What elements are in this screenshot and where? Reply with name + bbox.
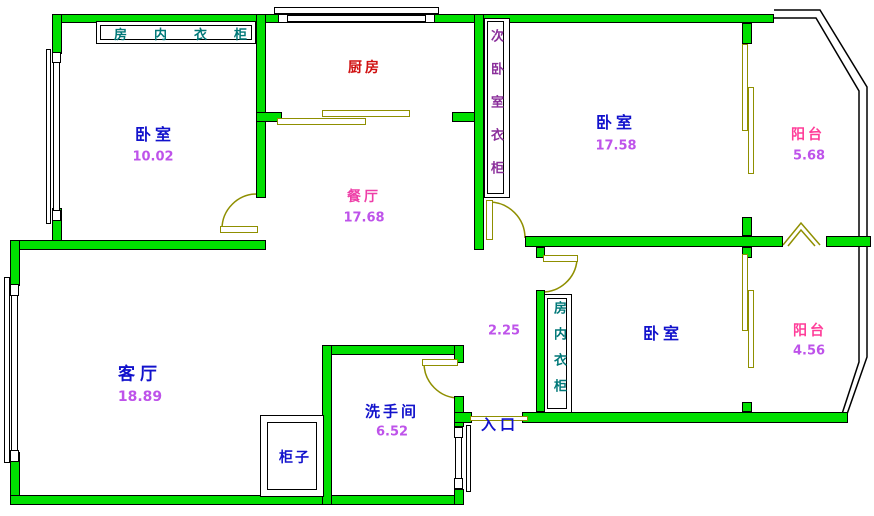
- kitchen-sliding-door-lower-panel: [277, 118, 366, 125]
- wall-bedroom-br-bottom: [522, 412, 848, 423]
- wardrobe-bottom-label: 房内衣柜: [549, 301, 568, 405]
- bedroom-bottom-right-door-arc: [541, 260, 577, 292]
- balcony-bottom-sliding-panel-b: [748, 290, 754, 368]
- bedroom-tl-window-post-top: [52, 52, 61, 63]
- bedroom-tr-name: 卧室: [596, 109, 636, 133]
- balcony-bottom-name: 阳台: [793, 320, 827, 340]
- dining-area: 17.68: [343, 211, 384, 226]
- living-window-outer: [4, 277, 10, 463]
- wall-bedroom-tr-bottom-right: [826, 236, 871, 247]
- kitchen-sliding-door-upper-panel: [322, 110, 410, 117]
- living-window-band: [11, 295, 18, 451]
- casement-window-chevron-inner: [788, 230, 815, 246]
- bathroom-window-post-bottom: [454, 478, 463, 489]
- balcony-top-sliding-panel-b: [748, 87, 754, 174]
- living-area: 18.89: [118, 389, 162, 405]
- bedroom-tr-area: 17.58: [595, 139, 636, 154]
- kitchen-window-post-left: [278, 14, 288, 23]
- dining-name: 餐厅: [347, 186, 381, 206]
- bathroom-door-arc: [424, 363, 459, 398]
- wall-kitchen-right: [474, 14, 484, 250]
- cabinet-name: 柜子: [279, 447, 311, 467]
- kitchen-name: 厨房: [348, 57, 382, 77]
- wardrobe-top-label: 房内衣柜: [114, 24, 274, 43]
- kitchen-window-outer: [274, 7, 439, 14]
- bathroom-window-post-top: [454, 427, 463, 438]
- balcony-bottom-area: 4.56: [793, 344, 825, 359]
- balcony-top-name: 阳台: [791, 124, 825, 144]
- wall-bedroom-tr-bottom-left: [525, 236, 783, 247]
- hallway-area: 2.25: [488, 324, 520, 339]
- bedroom-tr-door-leaf: [486, 200, 493, 240]
- wall-living-left-upper: [10, 240, 20, 286]
- bathroom-door-leaf: [422, 359, 458, 366]
- bedroom-tl-window-post-bottom: [52, 210, 61, 221]
- wall-bathroom-top: [322, 345, 464, 355]
- living-window-post-top: [10, 284, 19, 296]
- bedroom-br-name: 卧室: [643, 320, 683, 344]
- bathroom-name: 洗手间: [365, 401, 419, 422]
- wall-bottom: [10, 495, 463, 505]
- bedroom-tl-window-band: [53, 62, 60, 211]
- living-name: 客厅: [118, 360, 162, 385]
- bedroom-tl-door-leaf: [220, 226, 258, 233]
- casement-window-chevron-outer: [783, 223, 820, 245]
- wall-balcony-top-divider-lower-stub: [742, 217, 752, 236]
- bedroom-tl-area: 10.02: [132, 150, 173, 165]
- kitchen-window-post-right: [425, 14, 435, 23]
- bathroom-area: 6.52: [376, 425, 408, 440]
- wall-balcony-bottom-divider-lower-stub: [742, 402, 752, 412]
- balcony-top-area: 5.68: [793, 149, 825, 164]
- wall-balcony-top-divider-upper-stub: [742, 23, 752, 44]
- entrance-name: 入口: [481, 414, 519, 435]
- bedroom-br-door-leaf: [543, 255, 578, 262]
- bedroom-tl-name: 卧室: [135, 121, 175, 145]
- floor-plan: 房内衣柜 次卧室衣柜 房内衣柜 卧室 10.02 厨房 餐厅 17.68 卧室 …: [0, 0, 874, 516]
- living-window-post-bottom: [10, 450, 19, 462]
- bedroom-tl-window-outer: [46, 49, 51, 224]
- bedroom-top-left-door-arc: [222, 194, 257, 229]
- wardrobe-secondary-label: 次卧室衣柜: [486, 29, 505, 194]
- wall-bedroom-tl-left-upper: [52, 14, 62, 54]
- wall-bathroom-right-lower: [454, 489, 464, 505]
- bathroom-window-band: [455, 437, 462, 479]
- wall-bedroom-tl-bottom: [10, 240, 266, 250]
- bathroom-window-outer: [466, 425, 471, 492]
- bedroom-top-right-door-arc: [489, 202, 525, 238]
- kitchen-window-band: [287, 15, 426, 22]
